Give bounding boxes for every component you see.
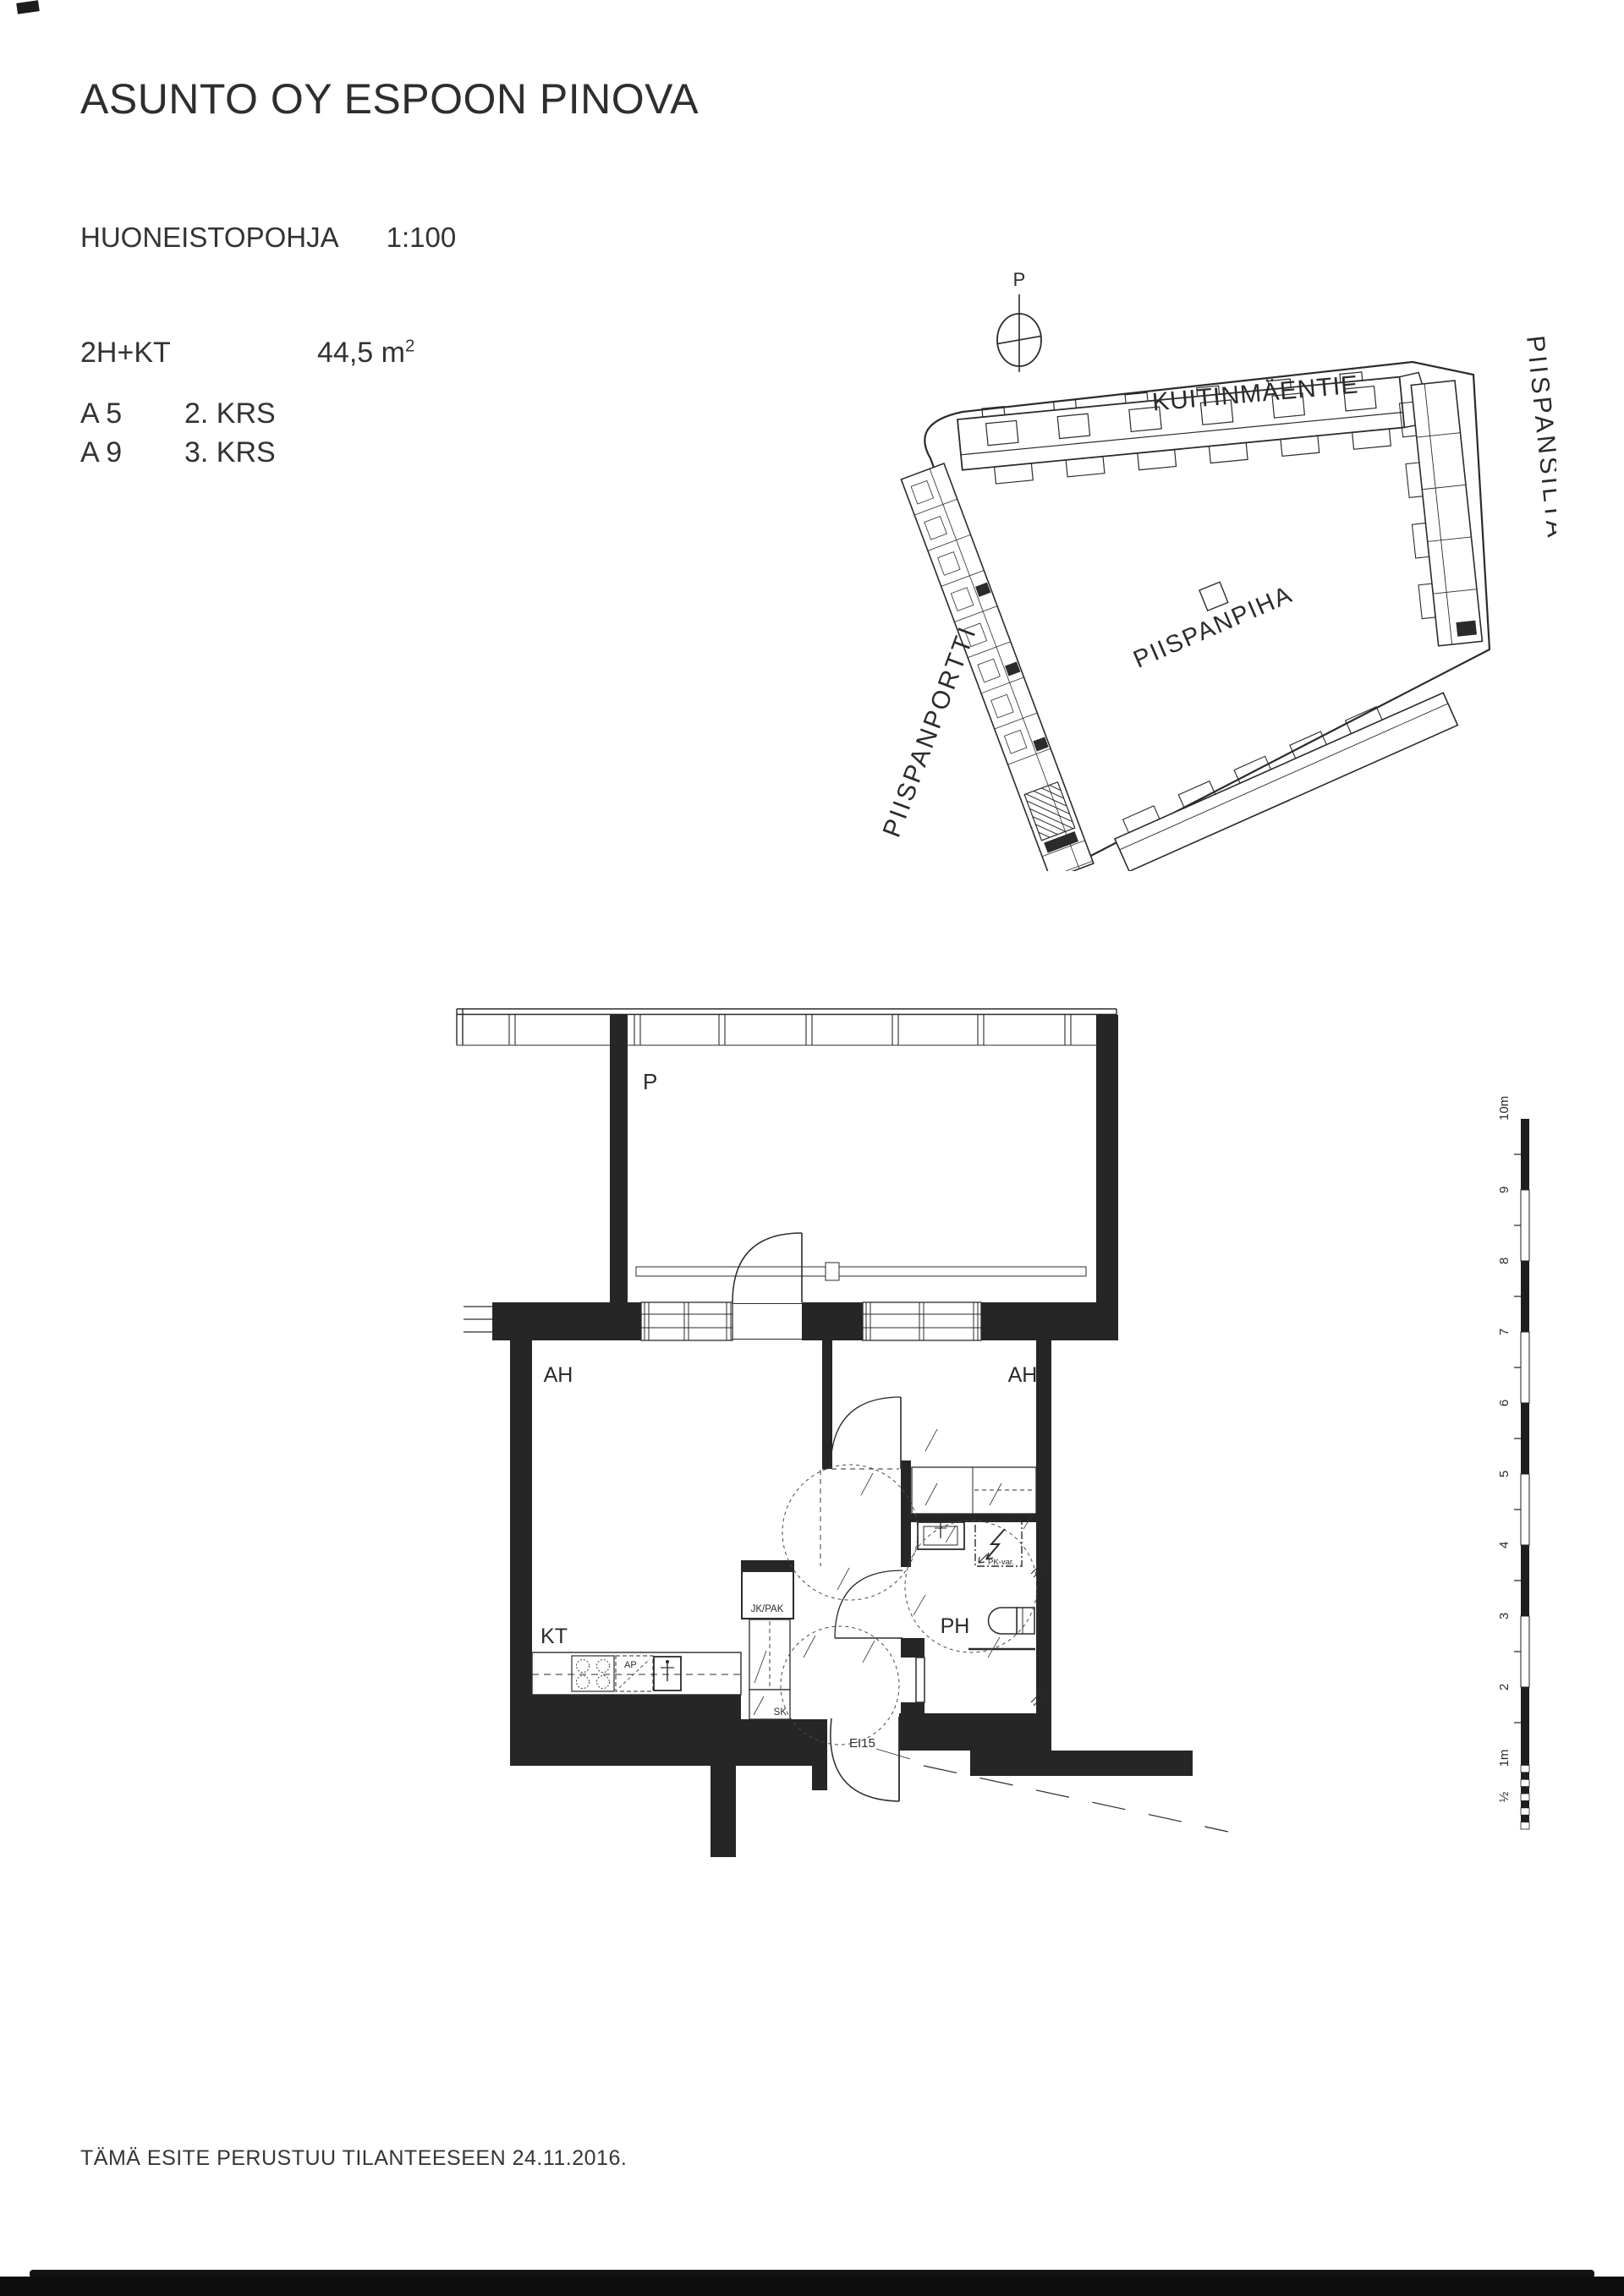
walls — [510, 1340, 1193, 1857]
washer-reservation-label: PK-var. — [988, 1558, 1014, 1567]
scale-label-10m: 10m — [1497, 1096, 1512, 1121]
plan-type-line: HUONEISTOPOHJA1:100 — [80, 222, 456, 254]
site-plan: P — [863, 245, 1556, 871]
duct-panel — [916, 1658, 924, 1702]
kitchen-counter — [532, 1652, 741, 1695]
apartment-area: 44,5 m2 — [317, 337, 414, 370]
scale-label-half: ½ — [1497, 1791, 1512, 1802]
cleaning-closet-label: SK — [774, 1707, 787, 1718]
entry-door-rating-label: EI15 — [849, 1736, 875, 1751]
balcony-pillar-right — [1096, 1015, 1118, 1302]
unit-floor-1: 2. KRS — [184, 397, 276, 430]
scale-label-5: 5 — [1497, 1471, 1512, 1477]
bedroom-door — [820, 1397, 901, 1566]
footer-note: TÄMÄ ESITE PERUSTUU TILANTEESEEN 24.11.2… — [80, 2146, 627, 2171]
north-wall — [464, 1302, 1118, 1340]
balcony-label: P — [643, 1069, 657, 1094]
scale-bar-segments — [1521, 1119, 1529, 1829]
site-building-north — [957, 365, 1435, 486]
balcony-pillar-left — [610, 1015, 628, 1302]
site-building-south — [1109, 680, 1457, 871]
scanned-floorplan-page: ASUNTO OY ESPOON PINOVA HUONEISTOPOHJA1:… — [0, 0, 1624, 2296]
scan-artifact-corner — [16, 0, 40, 14]
scale-bar: 10m 9 8 7 6 5 4 3 2 1m ½ — [1476, 1095, 1603, 1848]
kitchen-label: KT — [540, 1625, 568, 1648]
window-left — [641, 1302, 732, 1340]
fridge-freezer-label: JK/PAK — [751, 1604, 784, 1614]
page-title: ASUNTO OY ESPOON PINOVA — [80, 74, 699, 123]
hall-cabinet — [749, 1619, 790, 1719]
scale-label-1m: 1m — [1497, 1750, 1512, 1767]
balcony-glazing — [636, 1263, 1086, 1280]
scale-label-8: 8 — [1497, 1258, 1512, 1264]
dishwasher-label: AP — [624, 1660, 637, 1670]
bedroom-label: AH — [1008, 1363, 1038, 1387]
unit-floor-2: 3. KRS — [184, 436, 276, 469]
site-building-east — [1397, 381, 1482, 647]
scale-label-2: 2 — [1497, 1684, 1512, 1690]
scale-bar-halfticks — [1514, 1154, 1521, 1723]
scale-label-9: 9 — [1497, 1186, 1512, 1193]
street-west-label: PIISPANPORTTI — [878, 622, 983, 841]
scale-label-4: 4 — [1497, 1542, 1512, 1548]
balcony-door — [732, 1233, 802, 1340]
scan-artifact-band — [0, 2277, 1624, 2296]
plan-type-label: HUONEISTOPOHJA — [80, 222, 339, 253]
scale-label-7: 7 — [1497, 1329, 1512, 1335]
courtyard-structure — [1199, 582, 1228, 611]
electric-bolt-icon — [986, 1529, 1005, 1559]
bathroom-label: PH — [941, 1614, 970, 1638]
street-east-label: PIISPANSILTA — [1521, 334, 1556, 541]
unit-id-2: A 9 — [80, 436, 122, 469]
north-label: P — [1013, 269, 1026, 290]
street-south-label: PIISPANPIHA — [1129, 581, 1297, 674]
scale-bar-labels: 10m 9 8 7 6 5 4 3 2 1m ½ — [1497, 1096, 1512, 1802]
scale-label-6: 6 — [1497, 1400, 1512, 1406]
unit-id-1: A 5 — [80, 397, 122, 430]
site-building-west — [901, 463, 1093, 871]
living-room-label: AH — [544, 1363, 573, 1387]
plan-scale: 1:100 — [387, 222, 457, 253]
bathroom-door — [835, 1570, 903, 1638]
apartment-type: 2H+KT — [80, 337, 171, 370]
window-right — [863, 1302, 981, 1340]
wardrobes — [912, 1467, 1036, 1514]
balcony-railing — [457, 1009, 1116, 1045]
floor-plan: P — [440, 981, 1235, 1911]
scale-label-3: 3 — [1497, 1613, 1512, 1619]
compass-north-icon — [996, 294, 1041, 372]
